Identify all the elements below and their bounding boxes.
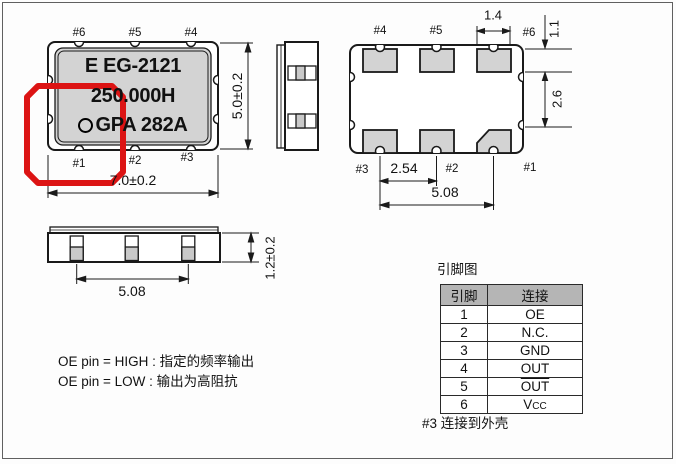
pin-table-row: 6VCC [441,396,583,414]
pad-pin-2-label: #2 [446,163,459,175]
oe-note-high: OE pin = HIGH : 指定的频率输出 [58,352,254,372]
pad-4 [363,49,397,72]
pin-table-row: 1OE [441,306,583,324]
top-pin-6-label: #6 [73,27,86,39]
top-pin-2-label: #2 [129,155,142,167]
dim-pad-height-label: 1.1 [547,20,562,38]
pin-number-cell: 3 [441,342,488,360]
package-marking: E EG-2121 250.000H GPA 282A [55,48,211,145]
pin-table-title: 引脚图 [437,258,478,278]
pin-table-header-conn: 连接 [488,285,583,306]
side-view-vertical [277,42,318,150]
top-pin-1-label: #1 [73,158,86,170]
dim-span2-label: 5.08 [118,283,145,299]
pin-table-row: 3GND [441,342,583,360]
pin-number-cell: 4 [441,360,488,378]
marking-line1: E EG-2121 [85,52,181,82]
pad-pin-1-label: #1 [524,162,537,174]
dim-pitch-label: 2.54 [390,160,417,176]
dim-row-gap-label: 2.6 [550,90,565,108]
pin-connection-cell: OE [488,306,583,324]
pin-connection-cell: OUT [488,378,583,396]
pin-table-row: 2N.C. [441,324,583,342]
pad-pin-3-label: #3 [356,164,369,176]
dim-span2-lines [77,264,189,284]
side-body [285,42,318,150]
oe-notes: OE pin = HIGH : 指定的频率输出 OE pin = LOW : 输… [58,352,254,392]
pin-connection-cell: VCC [488,396,583,414]
pin-number-cell: 2 [441,324,488,342]
pin-table-footnote: #3 连接到外壳 [422,412,508,432]
dim-width-label: 7.0±0.2 [110,172,157,188]
pad-5 [420,49,454,72]
pad-pin-5-label: #5 [430,25,443,37]
pin-connection-cell: GND [488,342,583,360]
top-pin-5-label: #5 [129,27,142,39]
pin-number-cell: 1 [441,306,488,324]
dim-pad-width-lines [477,26,510,44]
pin-connection-cell: N.C. [488,324,583,342]
pin-table-body: 1OE2N.C.3GND4OUT5OUT6VCC [441,306,583,414]
marking-circle-icon [78,118,93,133]
dim-span-label: 5.08 [431,184,458,200]
pad-6 [477,49,511,72]
side-view-horizontal [48,227,259,284]
pin-number-cell: 5 [441,378,488,396]
pin-number-cell: 6 [441,396,488,414]
pin-table: 引脚 连接 1OE2N.C.3GND4OUT5OUT6VCC [440,284,583,414]
top-pin-3-label: #3 [181,152,194,164]
oe-note-low: OE pin = LOW : 输出为高阻抗 [58,372,254,392]
pin-table-row: 4OUT [441,360,583,378]
dim-height-label: 5.0±0.2 [229,73,245,120]
dim-pad-width-label: 1.4 [484,8,502,23]
pad-pin-4-label: #4 [374,25,387,37]
marking-line3: GPA 282A [78,111,187,141]
pin-table-header-row: 引脚 连接 [441,285,583,306]
top-pin-4-label: #4 [185,27,198,39]
pad-pin-6-label: #6 [523,27,536,39]
pad-view [346,15,573,210]
pin-table-header-pin: 引脚 [441,285,488,306]
dim-thickness-label: 1.2±0.2 [263,236,278,279]
dim-thickness-lines [222,233,259,262]
pin-table-row: 5OUT [441,378,583,396]
pin-connection-cell: OUT [488,360,583,378]
marking-line2: 250.000H [91,82,175,112]
datasheet-drawing: E EG-2121 250.000H GPA 282A #6 #5 #4 #1 … [0,0,676,464]
dim-row-gap-lines [525,73,572,128]
